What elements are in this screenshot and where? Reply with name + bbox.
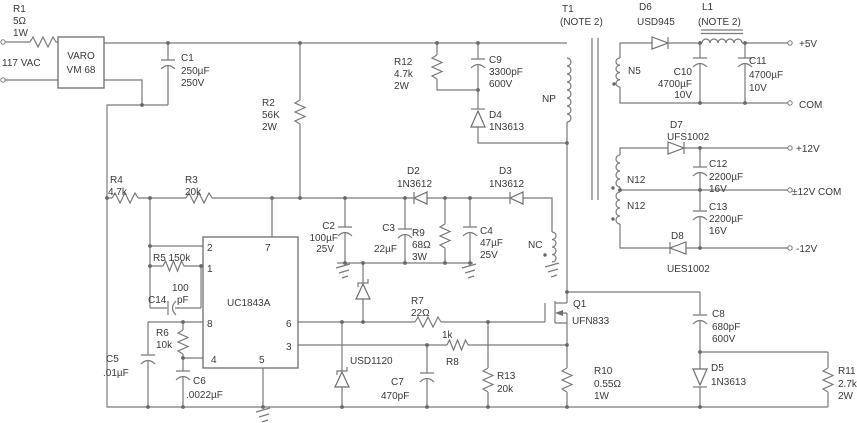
label-c7-value: 470pF	[381, 391, 409, 402]
label-c6-value: .0022µF	[186, 390, 223, 401]
wires	[3, 42, 828, 407]
label-bridge-model: VM 68	[67, 65, 96, 76]
label-r1-value: 5Ω	[13, 16, 27, 27]
label-c5-value: .01µF	[103, 368, 129, 379]
junction-dots	[105, 41, 747, 409]
label-output-com: COM	[799, 100, 822, 111]
label-c13-ref: C13	[709, 202, 728, 213]
label-c10-ref: C10	[674, 67, 693, 78]
inductor-l1-symbol	[701, 30, 743, 43]
label-d2-ref: D2	[407, 166, 420, 177]
label-d7-ref: D7	[670, 120, 683, 131]
label-r9-value: 68Ω	[412, 240, 431, 251]
core-lines	[592, 38, 598, 200]
label-winding-nc: NC	[528, 240, 542, 251]
label-c14-value: 100	[172, 283, 189, 294]
label-d3-part: 1N3612	[489, 179, 524, 190]
circuit-schematic: R1 5Ω 1W 117 VAC VARO VM 68 C1 250µF 250…	[0, 0, 857, 423]
output-terminal-12v	[788, 146, 792, 150]
label-r8-ref: R8	[446, 357, 459, 368]
diode-d5	[693, 369, 707, 387]
label-c2-rating: 25V	[316, 244, 334, 255]
label-r10-value: 0.55Ω	[594, 379, 621, 390]
winding-n12-bottom	[616, 192, 620, 224]
label-r2-ref: R2	[262, 98, 275, 109]
label-t1-ref: T1	[562, 4, 574, 15]
label-d4-part: 1N3613	[489, 122, 524, 133]
resistor-r11-symbol	[823, 368, 833, 392]
label-pin-2: 2	[207, 243, 213, 254]
output-terminal-5v	[788, 41, 792, 45]
label-pin-4: 4	[211, 355, 217, 366]
label-c3-ref: C3	[382, 223, 395, 234]
label-d6-part: USD945	[637, 17, 675, 28]
diode-d3	[510, 192, 523, 204]
label-d6-ref: D6	[639, 2, 652, 13]
label-c9-rating: 600V	[489, 79, 513, 90]
label-output-neg12v: -12V	[796, 244, 817, 255]
resistor-r12-symbol	[432, 55, 442, 79]
diode-d4	[471, 109, 485, 127]
label-r7-value: 22Ω	[411, 308, 430, 319]
label-r6-ref: R6	[156, 328, 169, 339]
label-r13-value: 20k	[497, 384, 514, 395]
l1-core-lines	[701, 30, 743, 34]
label-r11-power: 2W	[838, 391, 854, 402]
resistor-r13-symbol	[483, 368, 493, 392]
phase-dots	[543, 82, 615, 256]
input-terminal	[1, 40, 5, 44]
label-c4-value: 47µF	[480, 238, 503, 249]
label-c4-rating: 25V	[480, 250, 498, 261]
label-d5-part: 1N3613	[711, 377, 746, 388]
label-c12-ref: C12	[709, 159, 728, 170]
resistor-r6-symbol	[178, 330, 188, 354]
label-d3-ref: D3	[499, 166, 512, 177]
label-c14-ref: C14	[148, 295, 167, 306]
label-r11-ref: R11	[838, 366, 856, 377]
label-r12-power: 2W	[394, 81, 410, 92]
label-r11-value: 2.7k	[838, 379, 857, 390]
input-terminal	[1, 78, 5, 82]
label-c10-value: 4700µF	[658, 79, 692, 90]
diode-symbols	[335, 37, 707, 387]
diode-d7	[668, 142, 684, 154]
diode-d8	[670, 242, 686, 254]
resistor-r2-symbol	[295, 100, 305, 124]
label-c14-unit: pF	[177, 295, 189, 306]
ground-icon	[336, 264, 350, 278]
mosfet-q1-symbol	[545, 301, 567, 323]
resistor-r9-symbol	[440, 224, 450, 248]
ground-icon	[545, 263, 559, 277]
label-c5-ref: C5	[106, 354, 119, 365]
label-r1-ref: R1	[13, 4, 26, 15]
label-c9-ref: C9	[489, 55, 502, 66]
label-winding-n12-bottom: N12	[627, 201, 646, 212]
label-ic-part: UC1843A	[227, 298, 271, 309]
label-winding-n12-top: N12	[627, 175, 646, 186]
diode-d2	[414, 192, 427, 204]
label-t1-note: (NOTE 2)	[560, 17, 603, 28]
label-d5-ref: D5	[711, 363, 724, 374]
label-r12-value: 4.7k	[394, 69, 414, 80]
label-l1-note: (NOTE 2)	[698, 17, 741, 28]
label-pin-3: 3	[286, 342, 292, 353]
resistor-r1-symbol	[30, 37, 56, 47]
mosfet-body-arrow	[555, 310, 563, 316]
label-r7-ref: R7	[411, 296, 424, 307]
label-r10-power: 1W	[594, 391, 610, 402]
label-c11-ref: C11	[749, 56, 767, 67]
label-usd1120: USD1120	[350, 356, 393, 367]
transformer-t1-symbol	[552, 38, 620, 262]
label-r6-value: 10k	[156, 340, 173, 351]
label-r4-value: 4.7k	[108, 187, 128, 198]
label-q1-ref: Q1	[573, 299, 587, 310]
label-c11-value: 4700µF	[749, 70, 783, 81]
label-pin-6: 6	[286, 319, 292, 330]
output-terminal-neg12v	[788, 246, 792, 250]
label-r2-power: 2W	[262, 122, 278, 133]
label-c12-value: 2200µF	[709, 172, 743, 183]
label-c1-value: 250µF	[181, 66, 210, 77]
label-d7-part: UFS1002	[667, 132, 710, 143]
resistor-r10-symbol	[562, 368, 572, 392]
label-c4-ref: C4	[480, 226, 493, 237]
label-r12-ref: R12	[394, 57, 413, 68]
label-winding-np: NP	[542, 94, 556, 105]
label-c13-rating: 16V	[709, 226, 727, 237]
label-d2-part: 1N3612	[397, 179, 432, 190]
label-l1-ref: L1	[702, 2, 714, 13]
label-c11-rating: 10V	[749, 83, 767, 94]
schematic-page: R1 5Ω 1W 117 VAC VARO VM 68 C1 250µF 250…	[0, 0, 857, 423]
diode-d6	[652, 37, 668, 49]
label-r10-ref: R10	[594, 366, 613, 377]
label-r8-value: 1k	[442, 330, 454, 341]
label-c3-value: 22µF	[374, 244, 397, 255]
winding-n5	[616, 58, 620, 87]
label-c12-rating: 16V	[709, 184, 727, 195]
ground-icon	[256, 408, 270, 422]
bridge-rectifier-varo	[58, 37, 104, 88]
label-r2-value: 56K	[262, 110, 280, 121]
label-q1-part: UFN833	[572, 316, 610, 327]
label-c8-ref: C8	[712, 309, 725, 320]
output-terminal-com	[788, 101, 792, 105]
label-r4-ref: R4	[110, 175, 123, 186]
label-d8-part: UES1002	[667, 264, 710, 275]
label-c7-ref: C7	[391, 377, 404, 388]
label-r3-ref: R3	[185, 175, 198, 186]
label-output-5v: +5V	[799, 39, 817, 50]
label-c1-rating: 250V	[181, 78, 205, 89]
label-r13-ref: R13	[497, 371, 516, 382]
winding-np	[567, 58, 571, 122]
label-c13-value: 2200µF	[709, 214, 743, 225]
label-output-12v: +12V	[796, 144, 820, 155]
label-pin-5: 5	[259, 355, 265, 366]
label-r3-value: 20k	[185, 187, 202, 198]
label-pin-7: 7	[265, 243, 271, 254]
label-r9-power: 3W	[412, 252, 428, 263]
label-r1-power: 1W	[13, 28, 29, 39]
ground-icon	[462, 264, 476, 278]
label-input-source: 117 VAC	[2, 58, 41, 69]
label-d4-ref: D4	[489, 110, 502, 121]
label-d8-ref: D8	[671, 231, 684, 242]
label-c9-value: 3300pF	[489, 67, 523, 78]
capacitor-c14-symbol	[168, 301, 176, 315]
label-winding-n5: N5	[628, 66, 641, 77]
winding-nc	[552, 232, 556, 262]
label-c2-ref: C2	[322, 221, 335, 232]
label-c2-value: 100µF	[309, 233, 338, 244]
label-pin-8: 8	[207, 319, 213, 330]
label-r5: R5 150k	[153, 253, 191, 264]
label-bridge-brand: VARO	[67, 51, 95, 62]
label-c10-rating: 10V	[674, 90, 692, 101]
label-r9-ref: R9	[412, 228, 425, 239]
label-pin-1: 1	[207, 264, 213, 275]
winding-n12-top	[616, 155, 620, 187]
label-c1-ref: C1	[181, 53, 194, 64]
label-c8-rating: 600V	[712, 334, 736, 345]
label-c8-value: 680pF	[712, 322, 740, 333]
resistor-r8-symbol	[447, 340, 468, 350]
label-c6-ref: C6	[193, 376, 206, 387]
label-output-12v-com: ±12V COM	[792, 187, 841, 198]
